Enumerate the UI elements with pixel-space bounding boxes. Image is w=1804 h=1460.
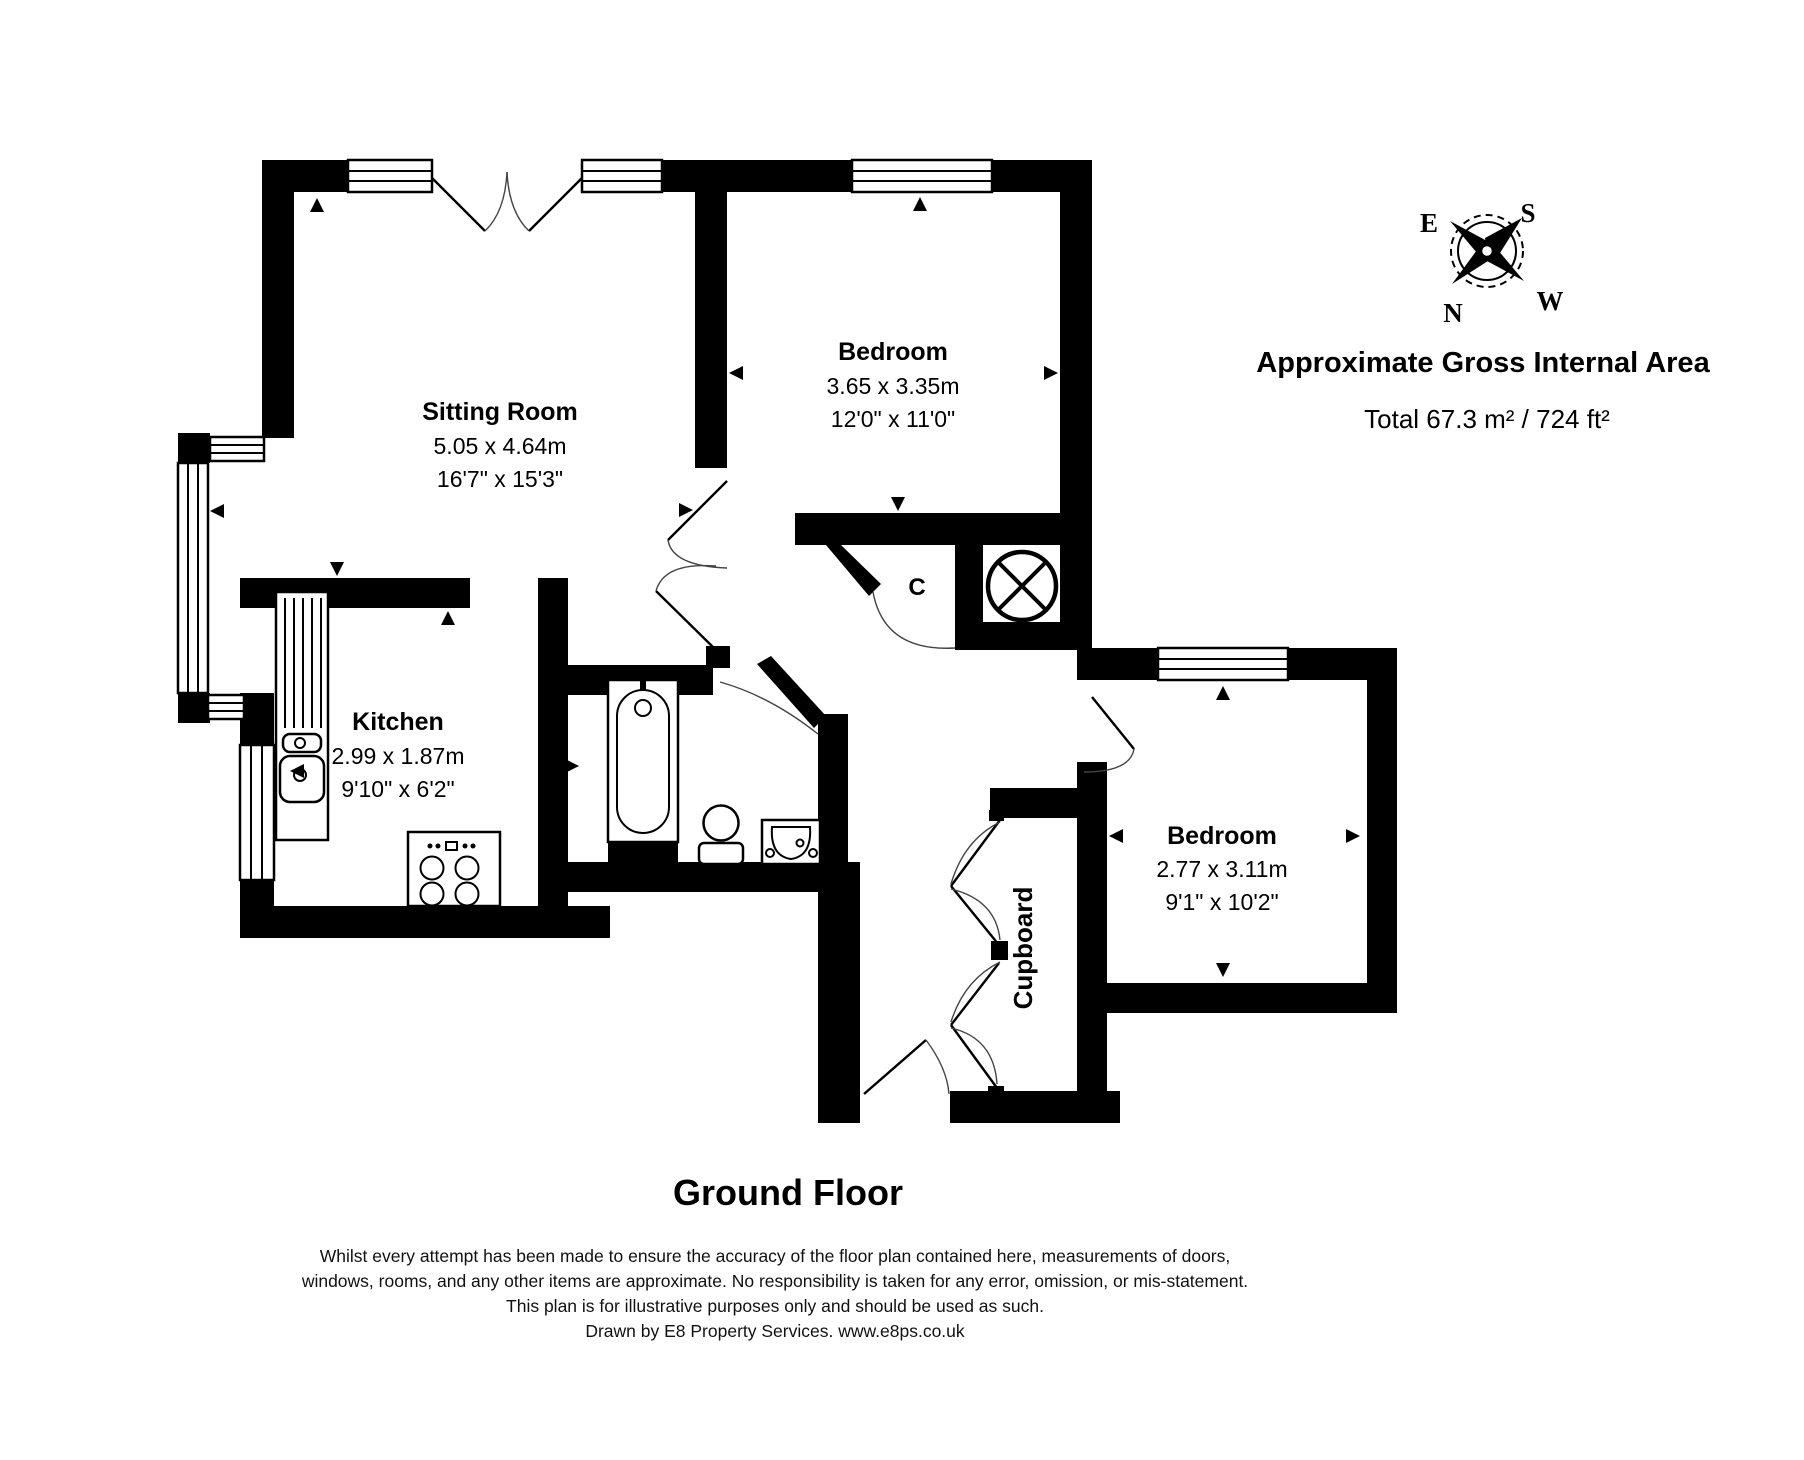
arrow-right-icon (1346, 829, 1360, 843)
cupboard-bifold-doors (951, 810, 1008, 1096)
wall (955, 622, 1092, 650)
disclaimer-line-1: Whilst every attempt has been made to en… (320, 1246, 1231, 1266)
wall (795, 513, 1092, 545)
arrow-left-icon (210, 504, 224, 518)
sitting-room-label: Sitting Room (422, 398, 578, 426)
bedroom1-label: Bedroom (838, 338, 948, 366)
disclaimer-line-3: This plan is for illustrative purposes o… (506, 1296, 1044, 1316)
wall (818, 714, 848, 862)
bedroom2-door (1084, 697, 1134, 772)
window-kitchen-left (240, 745, 274, 880)
wall (262, 160, 348, 192)
compass-north-label: N (1443, 298, 1463, 328)
bedroom1-door (668, 481, 727, 568)
window-bay-bottom (208, 695, 244, 719)
sitting-room-metric: 5.05 x 4.64m (434, 433, 567, 459)
basin (762, 820, 820, 864)
arrow-down-icon (1216, 963, 1230, 977)
wall (538, 578, 568, 938)
closet-c-label: C (908, 574, 925, 601)
area-total: Total 67.3 m² / 724 ft² (1364, 404, 1610, 434)
compass-rose: E S N W (1420, 198, 1564, 328)
wall (262, 192, 294, 438)
sitting-room-imperial: 16'7" x 15'3" (437, 466, 563, 492)
window-sitting-top-right (582, 160, 662, 192)
bedroom1-imperial: 12'0" x 11'0" (831, 406, 955, 432)
wall (240, 578, 470, 608)
windows (178, 160, 1288, 880)
floorplan-canvas: Sitting Room 5.05 x 4.64m 16'7" x 15'3" … (0, 0, 1804, 1460)
toilet (699, 806, 743, 865)
arrow-right-icon (565, 759, 579, 773)
wall (706, 646, 730, 668)
wall (955, 545, 983, 622)
kitchen-sink (276, 592, 328, 840)
bathtub (608, 680, 678, 842)
walls (178, 160, 1397, 1123)
floorplan-page: Sitting Room 5.05 x 4.64m 16'7" x 15'3" … (0, 0, 1804, 1460)
bedroom2-metric: 2.77 x 3.11m (1156, 856, 1287, 882)
wall (1060, 192, 1092, 622)
bedroom1-metric: 3.65 x 3.35m (827, 373, 960, 399)
window-bay-left (178, 463, 208, 693)
wall (178, 433, 210, 463)
arrow-right-icon (679, 503, 693, 517)
disclaimer: Whilst every attempt has been made to en… (301, 1246, 1248, 1341)
cupboard-label: Cupboard (1008, 887, 1038, 1010)
wall (608, 842, 678, 862)
arrow-up-icon (1216, 686, 1230, 700)
compass-east-label: E (1420, 208, 1438, 238)
bathroom-door (720, 656, 826, 734)
sitting-room-door (656, 566, 716, 650)
stove (408, 832, 500, 906)
kitchen-imperial: 9'10" x 6'2" (341, 776, 454, 802)
wall (818, 862, 860, 1123)
arrow-left-icon (729, 366, 743, 380)
kitchen-metric: 2.99 x 1.87m (332, 743, 465, 769)
arrow-up-icon (913, 197, 927, 211)
wall (178, 693, 210, 723)
bedroom2-label: Bedroom (1167, 822, 1277, 850)
arrow-up-icon (441, 611, 455, 625)
wall (662, 160, 852, 192)
page-title: Ground Floor (673, 1172, 903, 1213)
wall (992, 160, 1092, 192)
wall (568, 862, 848, 892)
arrow-right-icon (1044, 366, 1058, 380)
bedroom2-imperial: 9'1" x 10'2" (1165, 889, 1278, 915)
wall (695, 192, 727, 468)
disclaimer-line-4: Drawn by E8 Property Services. www.e8ps.… (585, 1321, 965, 1341)
window-bedroom1-top (852, 160, 992, 192)
closet-c-door (826, 545, 955, 648)
window-bedroom2-top (1158, 648, 1288, 680)
compass-south-label: S (1520, 198, 1535, 228)
kitchen-label: Kitchen (352, 708, 444, 736)
wall (1077, 983, 1397, 1013)
wall (1367, 680, 1397, 1013)
area-heading: Approximate Gross Internal Area (1256, 347, 1710, 379)
compass-west-label: W (1537, 286, 1564, 316)
wall (990, 788, 1107, 818)
arrow-up-icon (310, 198, 324, 212)
french-doors (432, 172, 582, 231)
water-heater-icon (988, 552, 1056, 620)
arrow-down-icon (330, 562, 344, 576)
entry-door (864, 1040, 949, 1094)
window-bay-top (210, 437, 264, 461)
arrow-down-icon (891, 497, 905, 511)
window-sitting-top-left (348, 160, 432, 192)
disclaimer-line-2: windows, rooms, and any other items are … (301, 1271, 1248, 1291)
arrow-left-icon (1109, 829, 1123, 843)
